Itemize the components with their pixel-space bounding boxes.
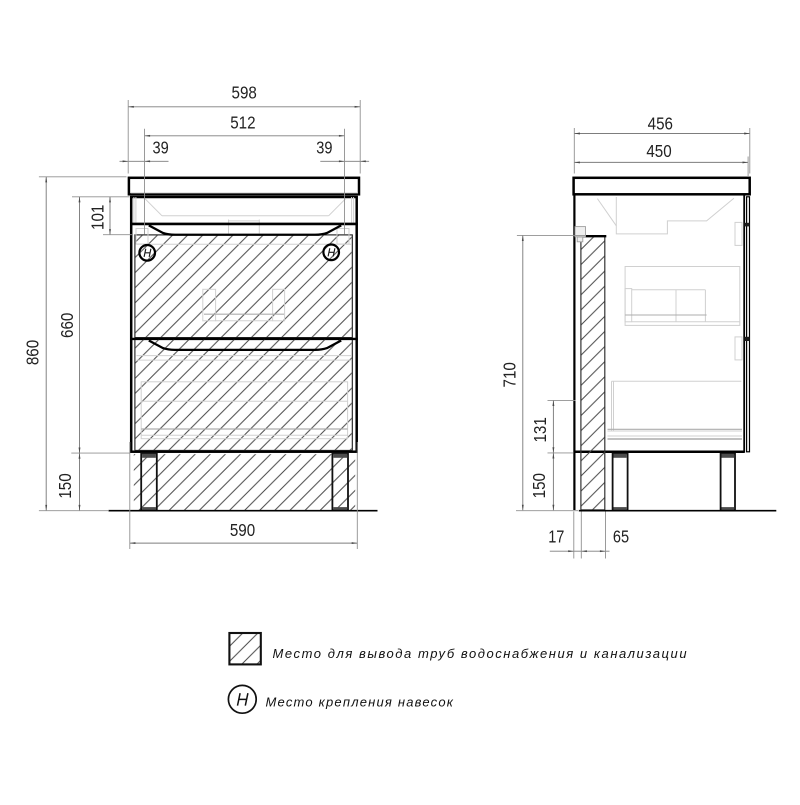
svg-text:17: 17 [548, 527, 564, 547]
svg-text:512: 512 [230, 112, 255, 132]
svg-text:598: 598 [232, 82, 257, 102]
svg-text:39: 39 [316, 137, 332, 157]
svg-text:65: 65 [613, 527, 629, 547]
svg-text:860: 860 [23, 340, 43, 366]
svg-text:150: 150 [529, 473, 549, 499]
svg-text:710: 710 [500, 362, 520, 388]
svg-text:131: 131 [530, 417, 550, 442]
svg-text:150: 150 [55, 473, 75, 499]
svg-text:590: 590 [230, 520, 256, 540]
svg-text:456: 456 [648, 113, 673, 133]
svg-text:450: 450 [646, 141, 672, 161]
svg-text:Место для вывода труб водоснаб: Место для вывода труб водоснабжения и ка… [273, 646, 689, 661]
svg-text:39: 39 [153, 137, 169, 157]
svg-text:101: 101 [88, 205, 108, 230]
svg-text:660: 660 [57, 312, 77, 338]
svg-text:Место крепления навесок: Место крепления навесок [266, 694, 455, 709]
